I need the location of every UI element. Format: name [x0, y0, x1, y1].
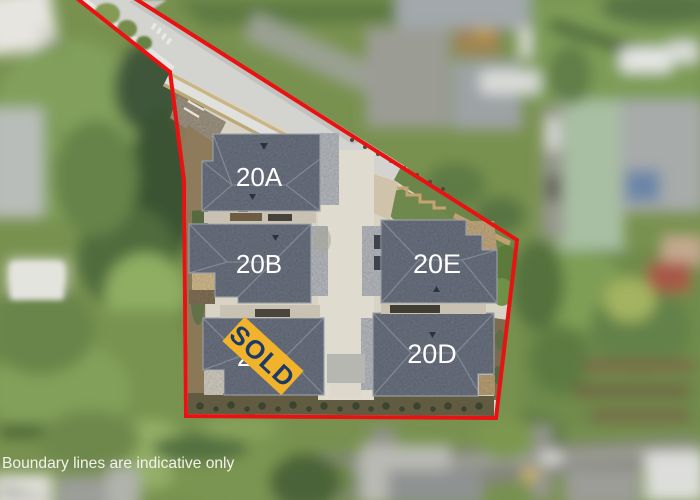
svg-text:20D: 20D [407, 339, 457, 369]
svg-text:20A: 20A [236, 162, 283, 192]
svg-text:Boundary lines are indicative: Boundary lines are indicative only [2, 455, 235, 472]
svg-text:20E: 20E [413, 249, 461, 279]
svg-text:20B: 20B [236, 249, 282, 279]
